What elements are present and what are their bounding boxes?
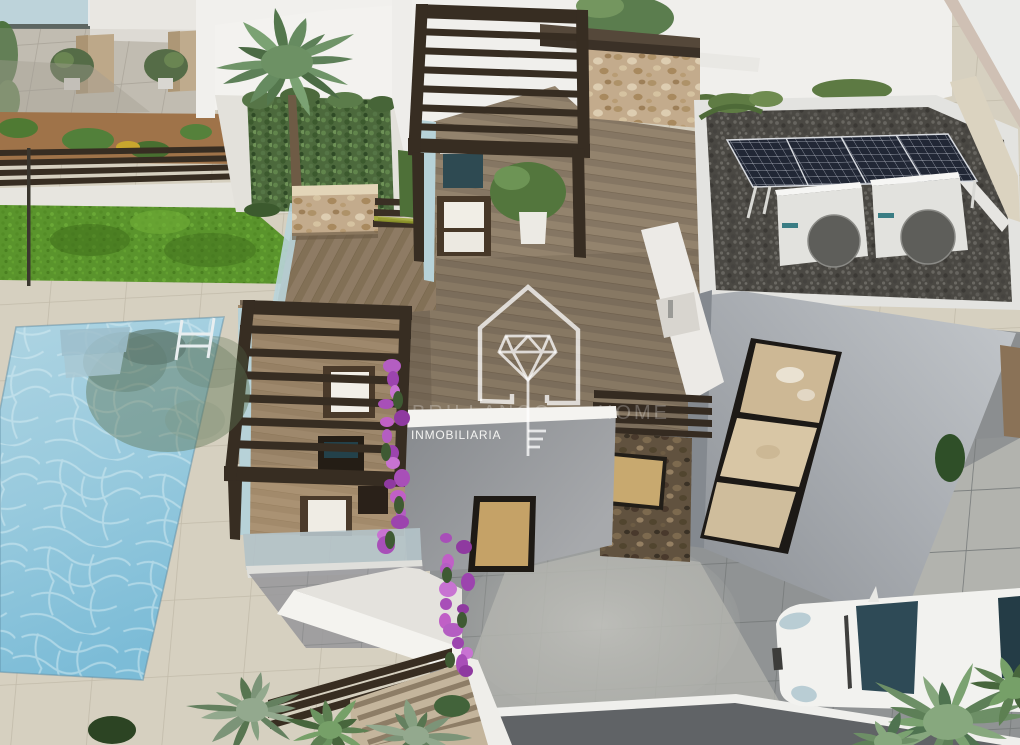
svg-text:INMOBILIARIA: INMOBILIARIA [411,428,501,442]
